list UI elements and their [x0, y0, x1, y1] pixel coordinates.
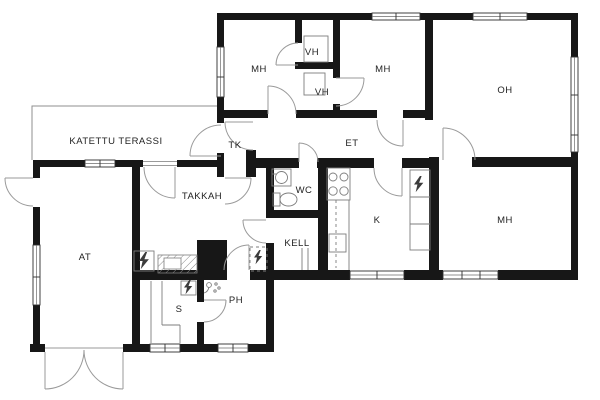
- room-label-k: K: [374, 215, 381, 226]
- room-label-oh: OH: [497, 85, 512, 96]
- cellar-hatch-icon: [302, 248, 308, 270]
- toilet-icon: [273, 193, 297, 206]
- kitchen-cabinets-icon: [410, 170, 430, 250]
- window-south-s: [150, 344, 180, 352]
- window-west-mh: [217, 47, 224, 97]
- room-label-takkah: TAKKAH: [182, 191, 222, 202]
- room-label-s: S: [176, 304, 183, 315]
- window-north-mh: [372, 13, 420, 20]
- kitchen-counter-icon: [329, 200, 349, 270]
- window-south-ph: [218, 344, 248, 352]
- room-label-et: ET: [345, 138, 358, 149]
- sauna-stove-icon: [181, 280, 196, 295]
- window-south-mh: [443, 271, 498, 279]
- doors: [5, 43, 475, 389]
- window-terrace-at: [85, 160, 115, 167]
- room-label-ph: PH: [229, 295, 243, 306]
- room-label-terrace: KATETTU TERASSI: [69, 136, 162, 147]
- room-label-vh-lower: VH: [315, 87, 329, 98]
- room-label-wc: WC: [296, 185, 313, 196]
- room-label-kell: KELL: [284, 238, 309, 249]
- electric-symbol-icon: [414, 176, 423, 192]
- floor-plan-svg: KATETTU TERASSI MH VH VH MH OH TK ET WC …: [0, 0, 600, 400]
- window-south-k: [350, 271, 404, 279]
- fixtures: [134, 36, 430, 343]
- room-label-mh-top-mid: MH: [375, 64, 391, 75]
- room-label-mh-top-left: MH: [251, 64, 267, 75]
- walls: [30, 13, 578, 352]
- room-label-mh-bottom: MH: [497, 215, 513, 226]
- shower-mixer-icon: [204, 283, 220, 293]
- room-label-at: AT: [79, 252, 91, 263]
- floor-plan: KATETTU TERASSI MH VH VH MH OH TK ET WC …: [0, 0, 600, 400]
- terrace-outline: [32, 106, 217, 160]
- window-east-oh: [571, 57, 578, 152]
- room-label-tk: TK: [228, 140, 241, 151]
- window-north-oh: [473, 13, 527, 20]
- stove-burners-icon: [327, 168, 350, 200]
- water-heater-icon: [250, 247, 267, 271]
- room-label-vh-upper: VH: [305, 47, 319, 58]
- washbasin-icon: [272, 169, 291, 186]
- fireplace-icon: [158, 240, 227, 278]
- window-west-at: [33, 245, 40, 305]
